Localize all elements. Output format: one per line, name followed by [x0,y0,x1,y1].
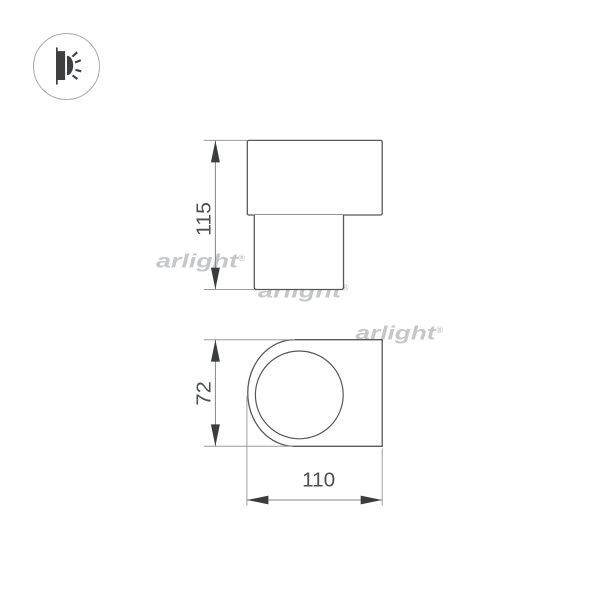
svg-text:110: 110 [302,469,335,492]
svg-text:arlight: arlight [156,251,240,273]
svg-text:®: ® [239,253,246,263]
svg-text:115: 115 [193,202,216,236]
svg-text:®: ® [437,325,444,335]
svg-text:72: 72 [193,381,216,406]
